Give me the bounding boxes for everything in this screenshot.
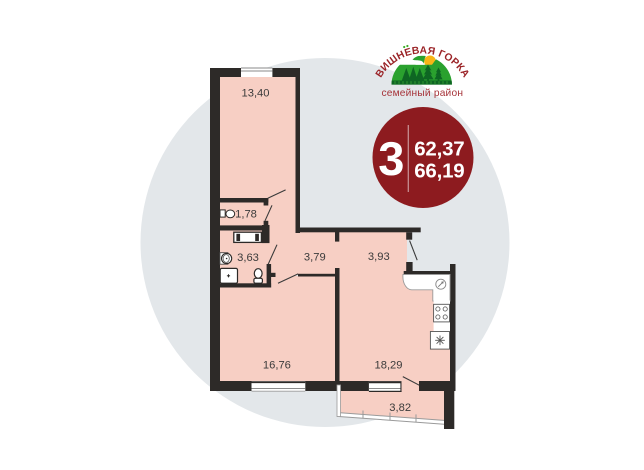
svg-text:62,37: 62,37	[414, 137, 464, 160]
svg-text:18,29: 18,29	[375, 360, 403, 372]
svg-text:3,63: 3,63	[237, 252, 259, 264]
svg-text:13,40: 13,40	[242, 87, 270, 99]
svg-text:3,79: 3,79	[304, 251, 326, 263]
svg-text:16,76: 16,76	[263, 360, 291, 372]
svg-text:семейный район: семейный район	[381, 88, 463, 99]
svg-text:1,78: 1,78	[235, 208, 257, 220]
svg-text:3: 3	[378, 132, 404, 185]
svg-text:66,19: 66,19	[414, 160, 464, 183]
svg-text:3,82: 3,82	[389, 402, 411, 414]
svg-text:3,93: 3,93	[368, 251, 390, 263]
